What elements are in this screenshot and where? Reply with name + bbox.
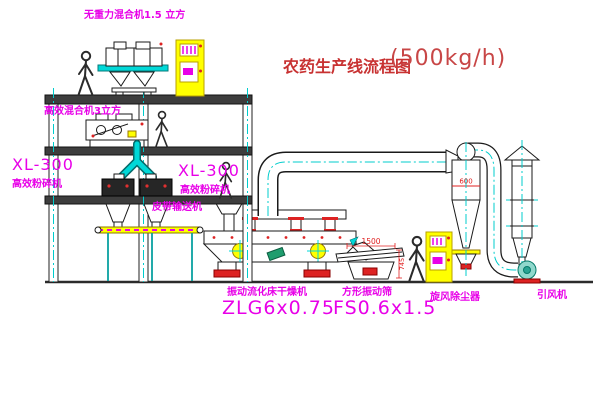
person-figure	[156, 112, 167, 147]
label-screen-model: FS0.6x1.5	[333, 299, 436, 318]
control-cabinet	[176, 40, 204, 96]
dim-screen-height: 745	[398, 258, 406, 270]
person-figure	[79, 52, 93, 95]
flow-diagram-canvas: 1500 745 600	[0, 0, 600, 403]
person-figure	[409, 237, 423, 281]
label-high-eff-mixer: 高效混合机3立方	[44, 107, 121, 117]
label-dryer-model: ZLG6x0.75	[222, 299, 335, 318]
label-cyclone: 旋风除尘器	[430, 293, 480, 303]
control-cabinet	[426, 232, 452, 282]
label-belt-conveyor: 皮带输送机	[152, 203, 202, 213]
label-mill-right-name: 高效粉碎机	[180, 186, 230, 196]
label-gravity-mixer: 无重力混合机1.5 立方	[84, 11, 185, 21]
label-mill-left-name: 高效粉碎机	[12, 180, 62, 190]
label-fan: 引风机	[537, 291, 567, 301]
vibrating-screen	[336, 248, 404, 279]
exhaust-stack	[505, 140, 539, 282]
label-mill-right-model: XL-300	[178, 163, 240, 179]
diagram-title-capacity: (500kg/h)	[390, 46, 506, 71]
label-mill-left-model: XL-300	[12, 157, 74, 173]
dim-screen-length: 1500	[361, 237, 380, 246]
exhaust-riser-duct	[268, 162, 448, 216]
belt-conveyor	[95, 227, 203, 281]
dim-cyclone-diameter: 600	[459, 178, 472, 186]
gravity-mixer	[98, 42, 168, 95]
pulverizer-left	[102, 174, 134, 196]
